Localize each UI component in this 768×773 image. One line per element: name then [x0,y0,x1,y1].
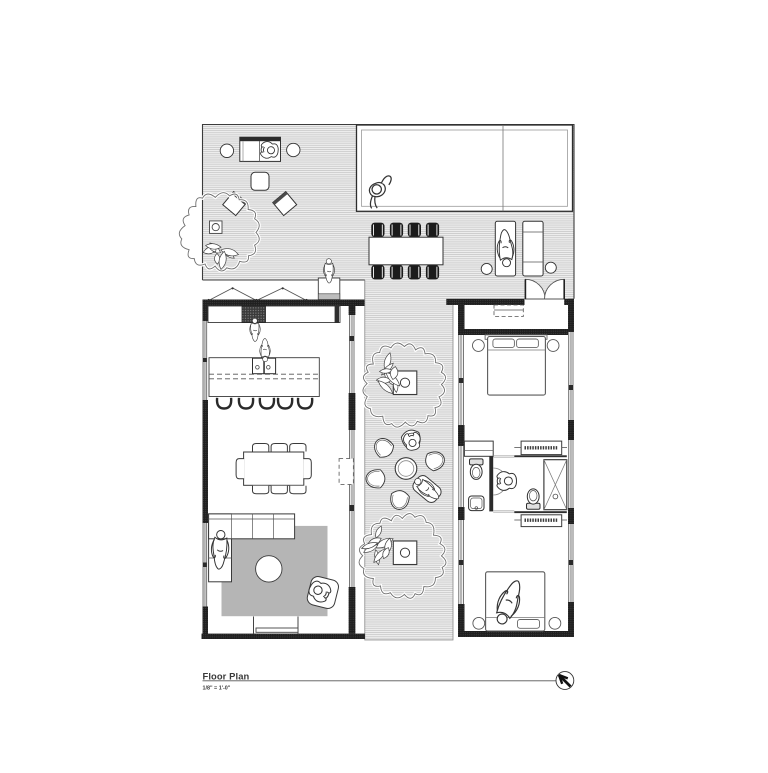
svg-text:Floor Plan: Floor Plan [203,671,250,682]
svg-text:1/8" = 1'-0": 1/8" = 1'-0" [203,686,231,692]
